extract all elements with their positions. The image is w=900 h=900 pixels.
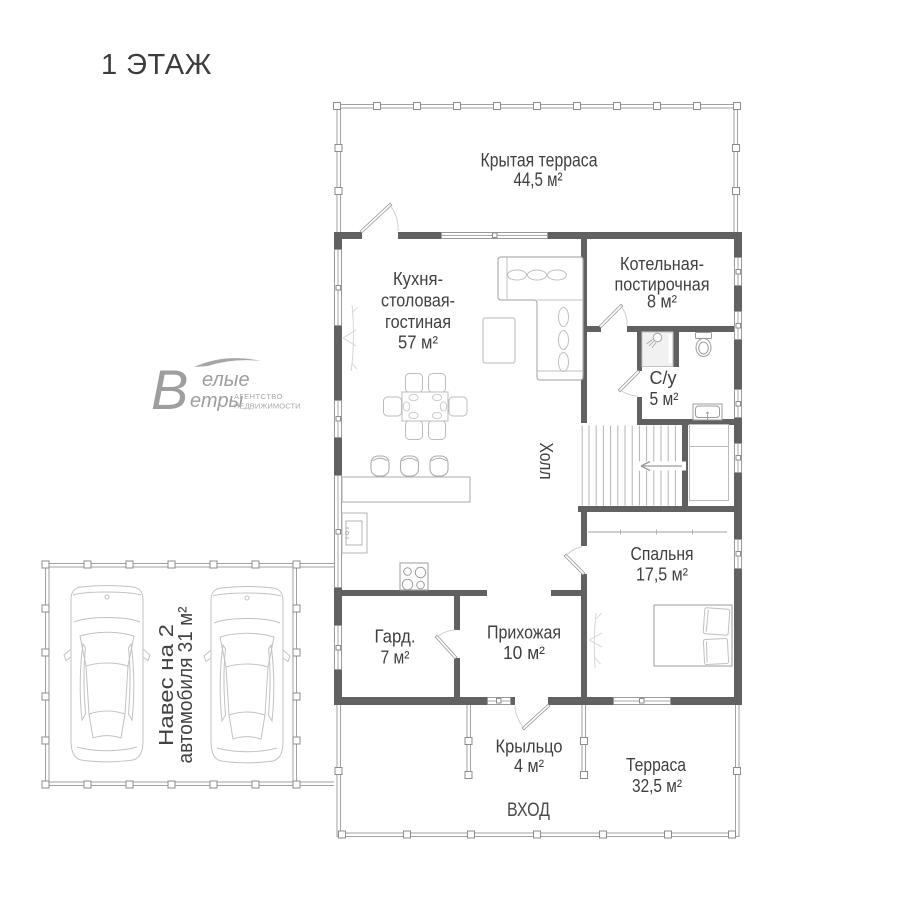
svg-text:1 ЭТАЖ: 1 ЭТАЖ bbox=[101, 49, 212, 81]
svg-text:С/у: С/у bbox=[650, 368, 677, 388]
svg-text:Крытая терраса: Крытая терраса bbox=[481, 151, 598, 172]
svg-text:гостиная: гостиная bbox=[385, 312, 451, 332]
svg-text:5 м²: 5 м² bbox=[650, 389, 679, 409]
svg-text:44,5 м²: 44,5 м² bbox=[514, 170, 563, 191]
svg-text:4 м²: 4 м² bbox=[514, 756, 544, 776]
svg-text:автомобиля 31 м²: автомобиля 31 м² bbox=[175, 606, 197, 763]
svg-text:Прихожая: Прихожая bbox=[487, 623, 561, 643]
svg-text:НЕДВИЖИМОСТИ: НЕДВИЖИМОСТИ bbox=[234, 402, 301, 411]
svg-text:Гард.: Гард. bbox=[375, 627, 416, 647]
svg-text:32,5 м²: 32,5 м² bbox=[632, 776, 682, 796]
svg-text:8 м²: 8 м² bbox=[647, 292, 677, 312]
svg-text:57 м²: 57 м² bbox=[398, 333, 438, 353]
svg-text:ВХОД: ВХОД bbox=[507, 800, 550, 821]
svg-text:Терраса: Терраса bbox=[626, 755, 687, 775]
svg-text:Крыльцо: Крыльцо bbox=[496, 737, 563, 757]
svg-text:АГЕНТСТВО: АГЕНТСТВО bbox=[234, 392, 283, 401]
svg-text:Котельная-: Котельная- bbox=[620, 254, 704, 274]
svg-text:17,5 м²: 17,5 м² bbox=[636, 565, 688, 585]
svg-text:Холл: Холл bbox=[536, 443, 556, 480]
svg-text:столовая-: столовая- bbox=[381, 291, 455, 311]
svg-text:елые: елые bbox=[202, 369, 250, 391]
svg-text:7 м²: 7 м² bbox=[381, 648, 410, 668]
svg-text:Кухня-: Кухня- bbox=[393, 269, 443, 289]
svg-text:10 м²: 10 м² bbox=[503, 643, 545, 663]
svg-text:В: В bbox=[151, 358, 188, 421]
svg-text:Спальня: Спальня bbox=[631, 544, 694, 564]
